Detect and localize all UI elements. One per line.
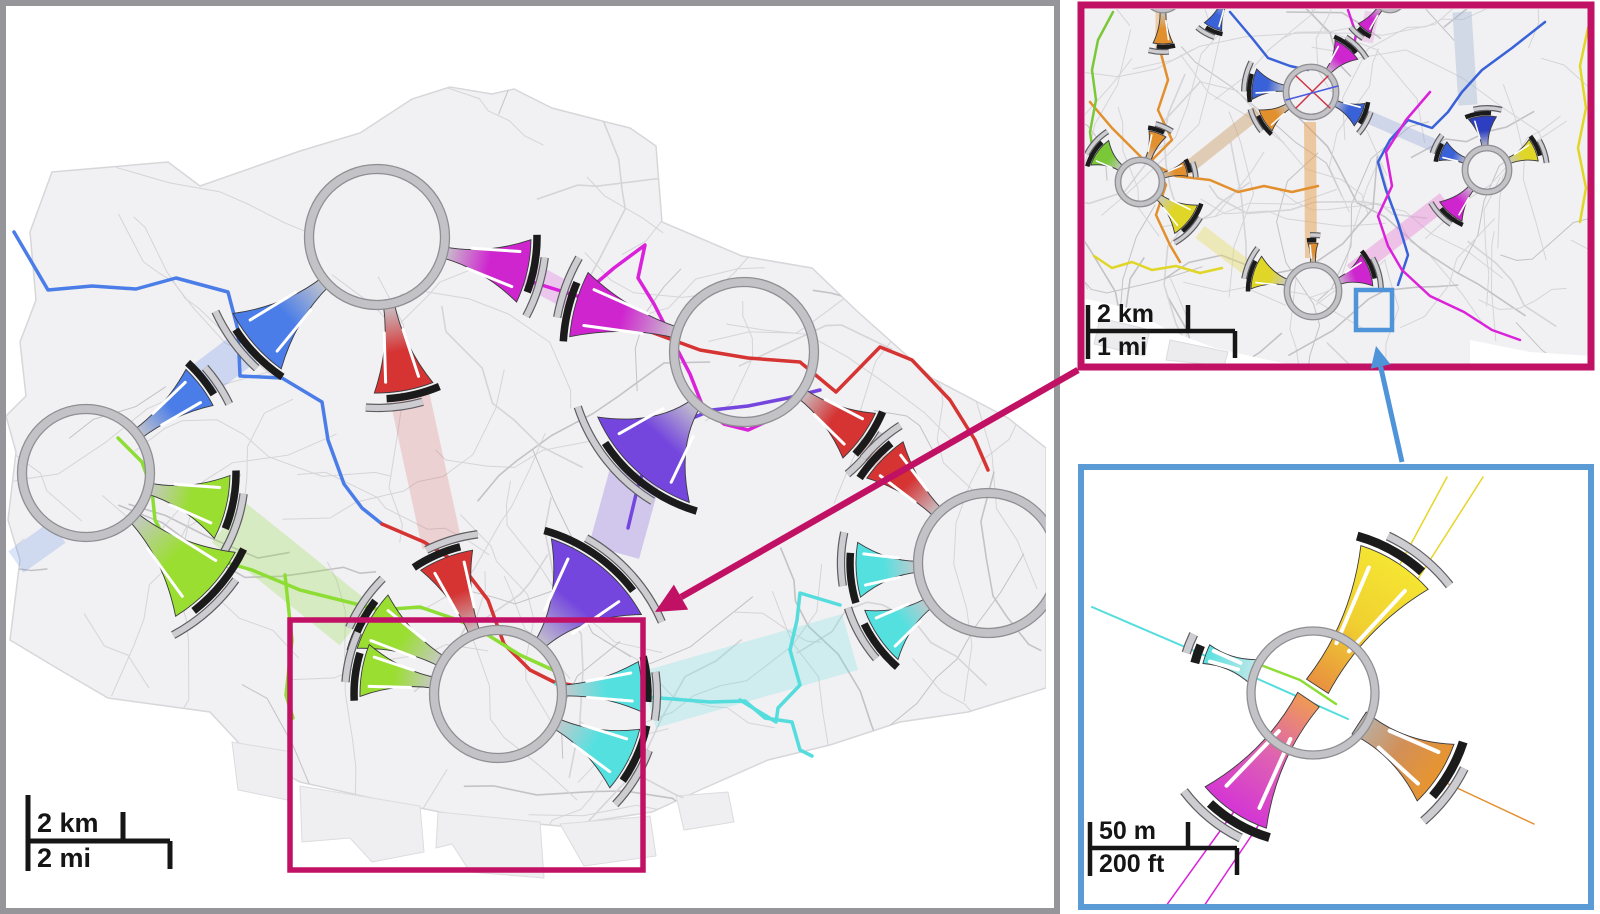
flow-arc — [655, 672, 657, 720]
flow-arc — [1195, 645, 1201, 663]
detail-inset-panel: 50 m200 ft — [1081, 467, 1591, 907]
scale-label-top: 2 km — [37, 808, 99, 838]
main-map-panel: 2 km2 mi — [0, 0, 1219, 914]
flow-arc — [1149, 50, 1169, 52]
fan-slot — [1256, 92, 1275, 93]
figure-canvas: 2 km2 mi 2 km1 mi 50 m200 ft — [0, 0, 1600, 914]
scale-label-top: 2 km — [1097, 300, 1154, 328]
scale-label-bottom: 1 mi — [1097, 333, 1147, 361]
flow-arc — [1157, 46, 1175, 47]
flow-arc — [1474, 108, 1502, 110]
scale-label-bottom: 2 mi — [37, 843, 91, 873]
flow-arc — [841, 532, 844, 586]
detail-link-arrow-shaft — [1381, 366, 1402, 462]
scale-label-bottom: 200 ft — [1099, 850, 1165, 878]
flow-arc — [1249, 74, 1252, 102]
fan-slot — [1310, 246, 1311, 258]
fan-slot — [384, 333, 385, 382]
flow-map-figure: 2 km2 mi 2 km1 mi 50 m200 ft — [0, 0, 1600, 914]
road-line — [1202, 359, 1272, 456]
fan-slot — [369, 686, 410, 687]
scale-label-top: 50 m — [1099, 817, 1156, 845]
detail-background — [1084, 470, 1588, 904]
